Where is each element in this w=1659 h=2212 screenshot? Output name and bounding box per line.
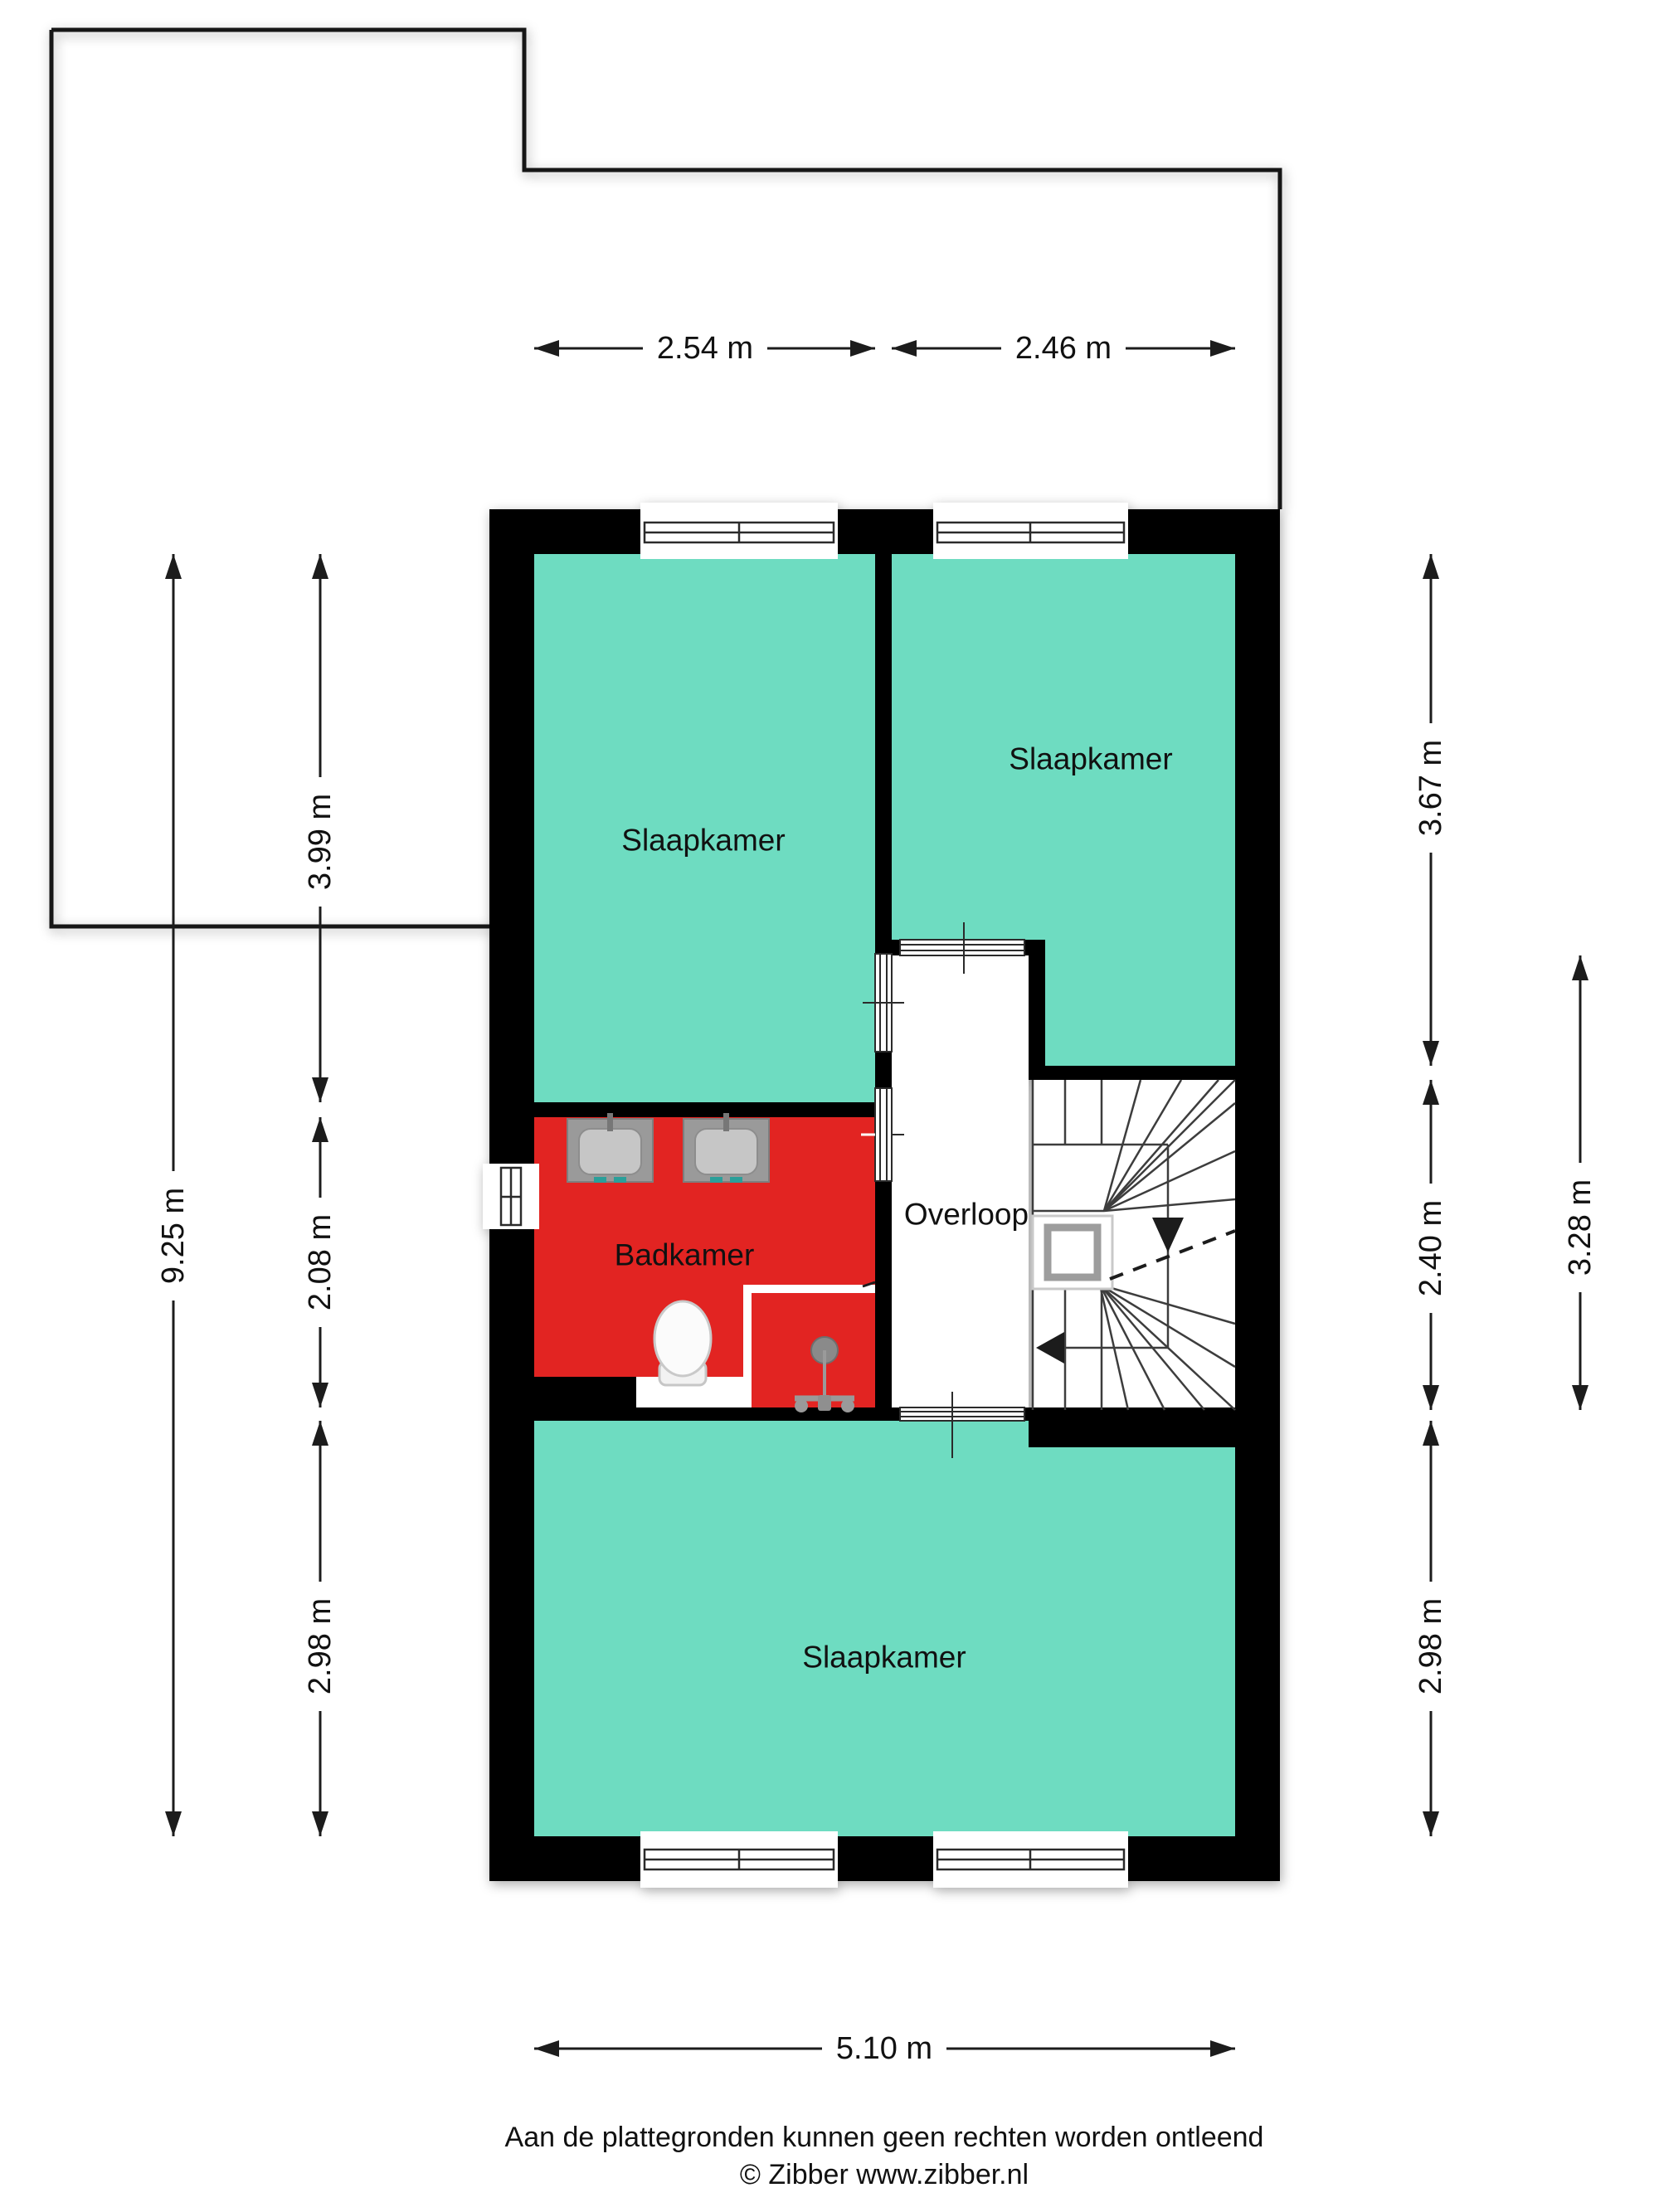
shower-handle	[841, 1399, 854, 1412]
dim-label: 3.28 m	[1563, 1179, 1598, 1276]
arrow-left-icon	[892, 340, 917, 357]
wall-top	[489, 509, 1280, 554]
sink-left	[567, 1113, 653, 1183]
arrow-up-icon	[165, 554, 182, 579]
toilet-bowl	[654, 1301, 711, 1376]
wall-bathroom-stub	[534, 1377, 636, 1421]
sink-drain	[614, 1177, 626, 1183]
arrow-up-icon	[1423, 554, 1439, 579]
dim-label: 2.46 m	[1015, 331, 1112, 366]
shower-mixer	[818, 1395, 831, 1411]
room-label-slaapkamer-top-left: Slaapkamer	[621, 824, 785, 858]
dim-label: 5.10 m	[836, 2031, 932, 2066]
sink-basin	[695, 1129, 757, 1174]
arrow-down-icon	[1423, 1811, 1439, 1836]
window-bottom-1	[640, 1831, 838, 1888]
dim-label: 3.67 m	[1413, 740, 1448, 836]
arrow-down-icon	[312, 1383, 328, 1407]
toilet	[654, 1301, 711, 1385]
sink-drain	[594, 1177, 606, 1183]
shower-screen-vertical	[743, 1285, 752, 1407]
floor-plan-svg: Slaapkamer Slaapkamer Badkamer Overloop …	[0, 0, 1659, 2212]
arrow-right-icon	[1210, 2040, 1235, 2057]
arrow-down-icon	[1423, 1385, 1439, 1410]
window-top-2	[933, 503, 1128, 559]
window-left-bathroom	[483, 1164, 539, 1229]
dim-right-outer: 3.28 m	[1561, 955, 1599, 1410]
arrow-right-icon	[850, 340, 875, 357]
arrow-up-icon	[1423, 1421, 1439, 1446]
room-label-slaapkamer-top-right: Slaapkamer	[1009, 742, 1172, 776]
dim-label: 2.54 m	[657, 331, 753, 366]
dim-top-1: 2.54 m	[534, 329, 875, 367]
arrow-down-icon	[312, 1077, 328, 1102]
arrow-right-icon	[1210, 340, 1235, 357]
dim-left-inner-3: 2.98 m	[301, 1421, 339, 1836]
room-label-badkamer: Badkamer	[615, 1238, 755, 1272]
stair-newel-void	[1048, 1228, 1097, 1277]
arrow-down-icon	[1572, 1385, 1588, 1410]
room-label-slaapkamer-bottom: Slaapkamer	[802, 1641, 966, 1675]
dim-bottom: 5.10 m	[534, 2030, 1235, 2068]
door-panel	[875, 1088, 892, 1181]
wall-right	[1235, 509, 1280, 1881]
arrow-left-icon	[534, 2040, 559, 2057]
dim-right-inner-2: 2.40 m	[1412, 1080, 1450, 1410]
arrow-down-icon	[312, 1811, 328, 1836]
sink-drain	[710, 1177, 722, 1183]
wall-bed2-stairs	[1029, 1066, 1235, 1080]
arrow-up-icon	[312, 554, 328, 579]
dim-label: 2.40 m	[1413, 1200, 1448, 1296]
dim-label: 2.08 m	[303, 1214, 338, 1310]
room-label-overloop: Overloop	[904, 1198, 1029, 1232]
window-top-1	[640, 503, 838, 559]
sink-drain	[730, 1177, 742, 1183]
dim-left-inner-2: 2.08 m	[301, 1117, 339, 1407]
dim-label: 9.25 m	[156, 1188, 191, 1284]
wall-bed1-bathroom	[534, 1102, 875, 1117]
dim-label: 2.98 m	[303, 1598, 338, 1694]
arrow-up-icon	[1572, 955, 1588, 980]
dim-left-outer: 9.25 m	[154, 554, 192, 1836]
sink-faucet-icon	[723, 1113, 729, 1131]
sink-basin	[579, 1129, 641, 1174]
wall-bottom	[489, 1836, 1280, 1881]
door-panel	[900, 1407, 1024, 1421]
footer-credit: © Zibber www.zibber.nl	[740, 2159, 1029, 2190]
dim-left-inner-1: 3.99 m	[301, 554, 339, 1102]
arrow-down-icon	[1423, 1041, 1439, 1066]
footer-disclaimer: Aan de plattegronden kunnen geen rechten…	[505, 2122, 1264, 2153]
door-panel	[900, 940, 1024, 955]
arrow-up-icon	[1423, 1080, 1439, 1105]
shower-handle	[795, 1399, 808, 1412]
arrow-up-icon	[312, 1117, 328, 1142]
dim-label: 3.99 m	[303, 794, 338, 890]
sink-right	[684, 1113, 769, 1183]
window-bottom-2	[933, 1831, 1128, 1888]
room-slaapkamer-bottom	[534, 1421, 1235, 1836]
dim-top-2: 2.46 m	[892, 329, 1235, 367]
arrow-left-icon	[534, 340, 559, 357]
arrow-down-icon	[165, 1811, 182, 1836]
dim-label: 2.98 m	[1413, 1598, 1448, 1694]
wall-overloop-right	[1029, 940, 1045, 1080]
arrow-up-icon	[312, 1421, 328, 1446]
sink-faucet-icon	[607, 1113, 613, 1131]
wall-stairs-bed3	[1029, 1407, 1235, 1447]
dim-right-inner-3: 2.98 m	[1412, 1421, 1450, 1836]
room-overloop	[892, 955, 1029, 1407]
dim-right-inner-1: 3.67 m	[1412, 554, 1450, 1066]
floorplan-page: Slaapkamer Slaapkamer Badkamer Overloop …	[0, 0, 1659, 2212]
shower-screen-horizontal	[743, 1285, 875, 1293]
